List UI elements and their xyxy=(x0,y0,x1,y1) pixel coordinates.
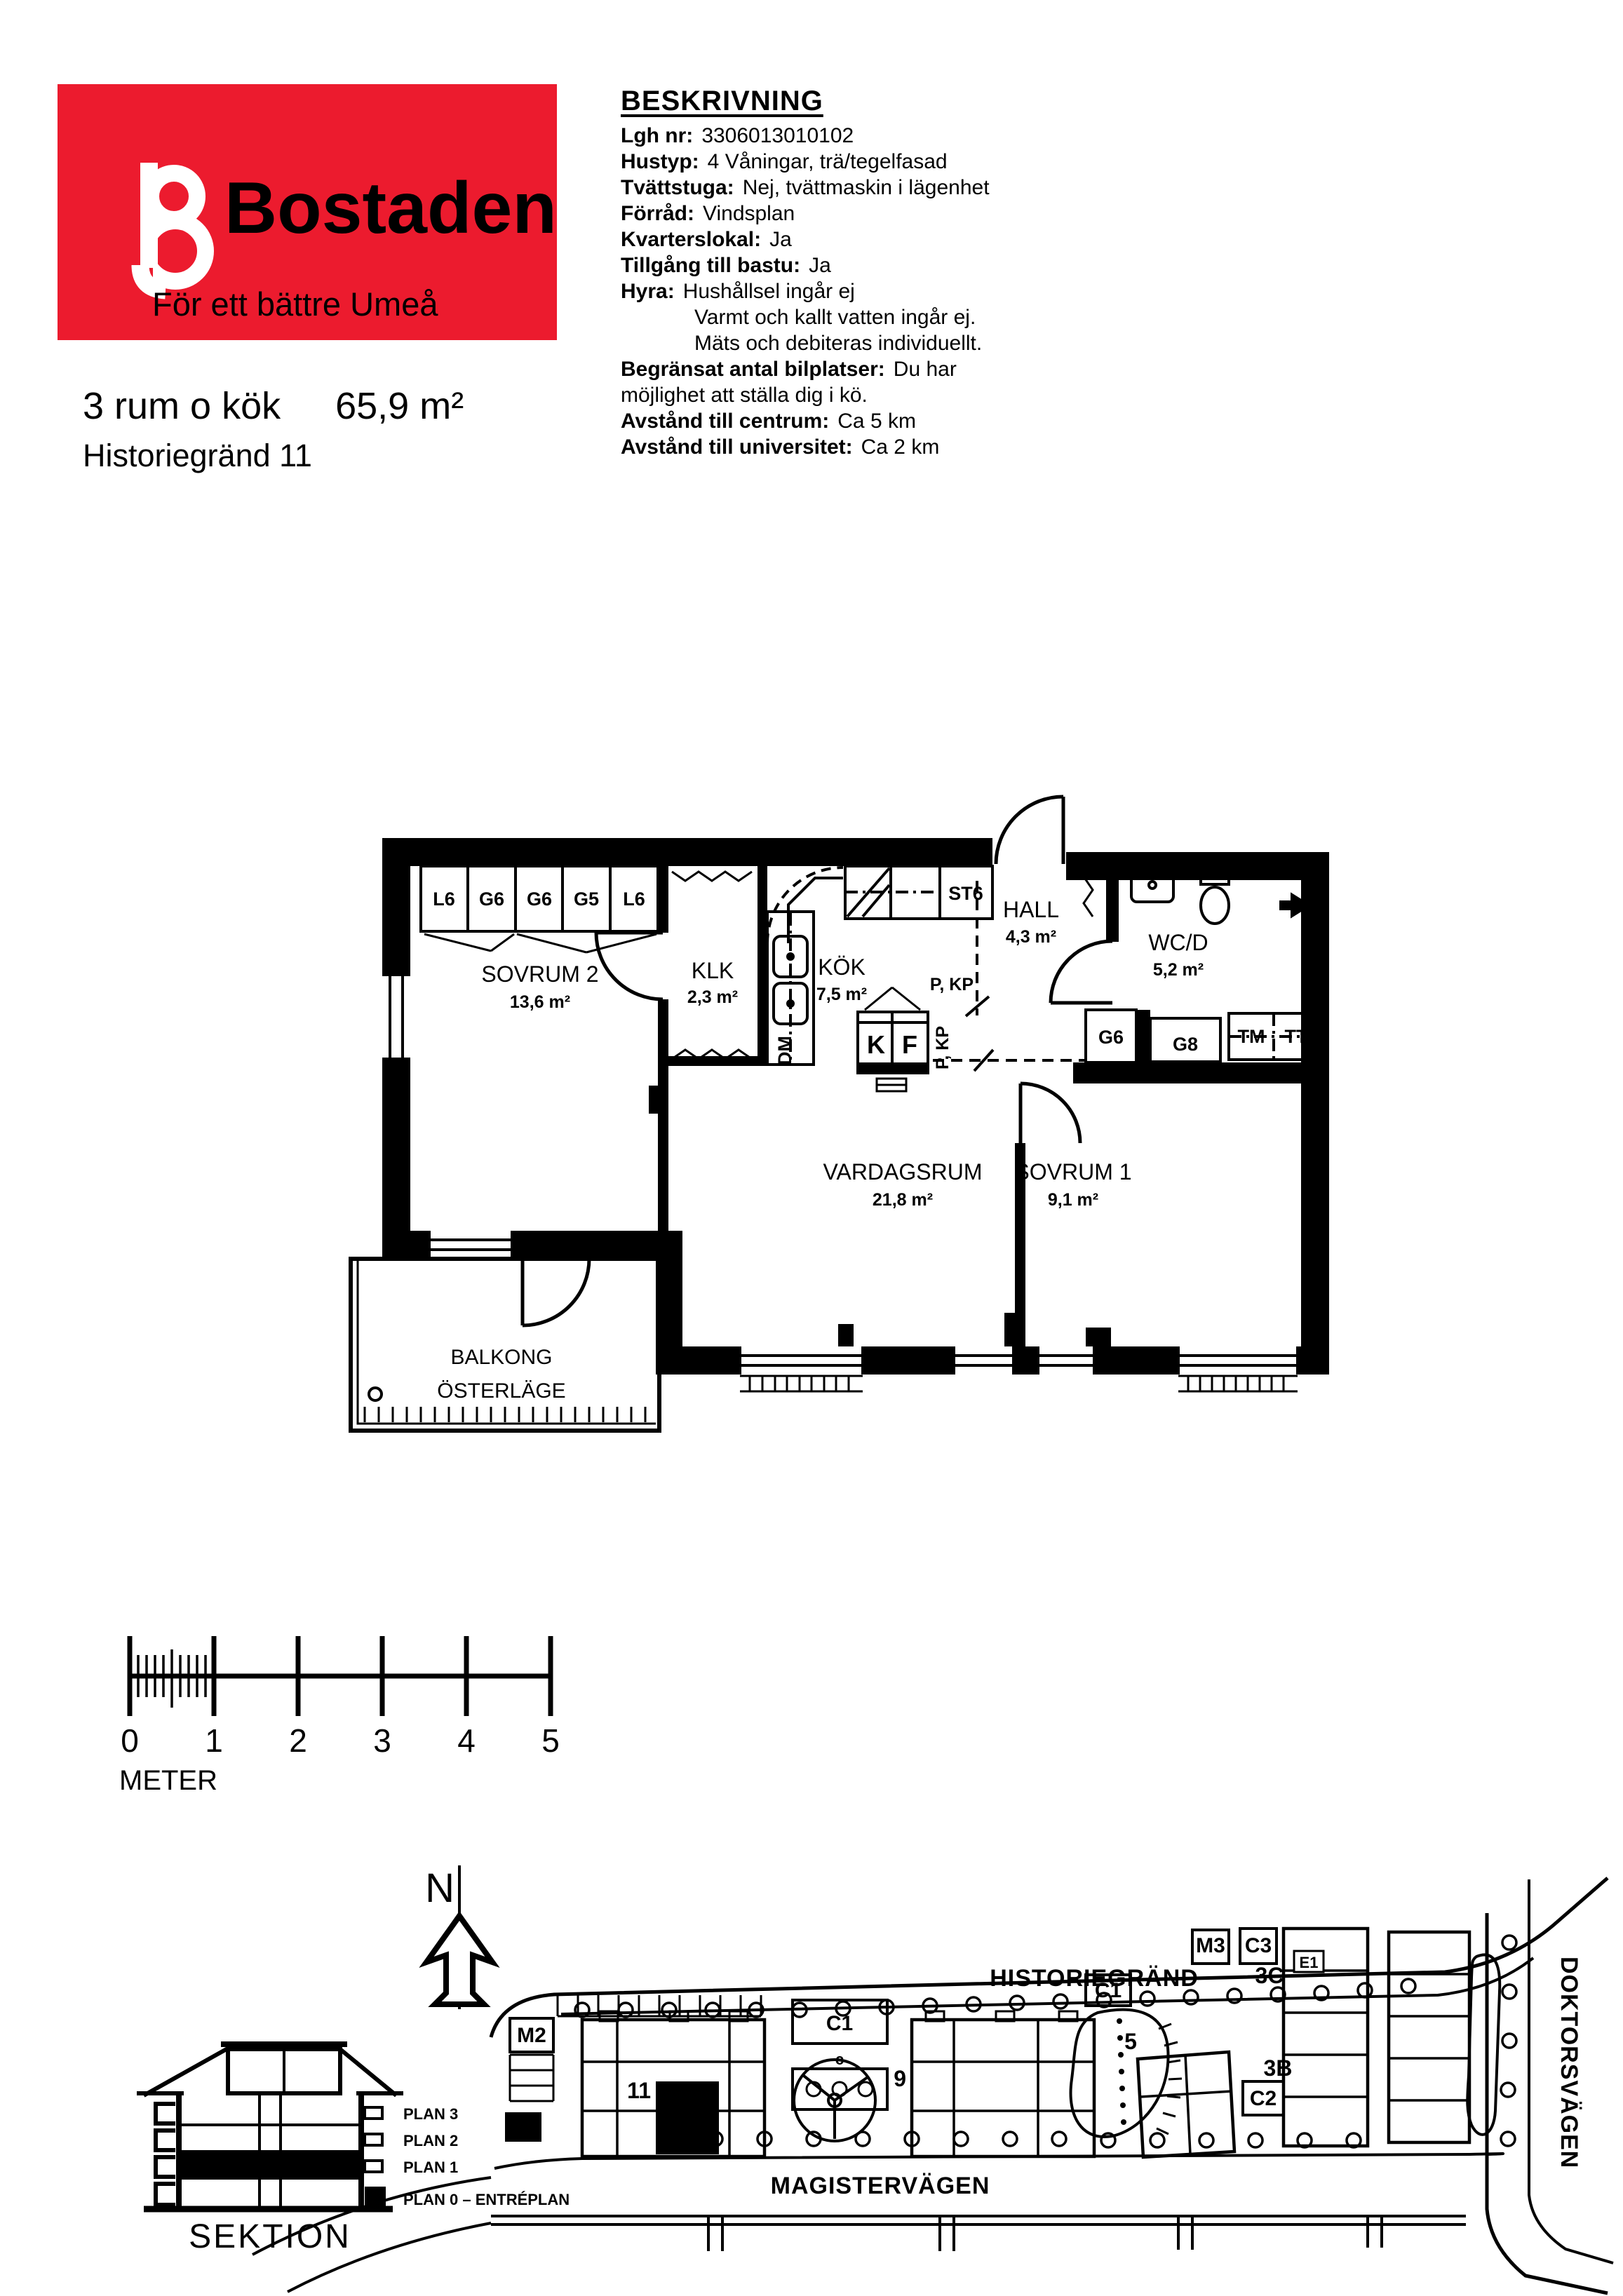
scale-tick: 5 xyxy=(541,1722,560,1759)
washer-label: TM xyxy=(1238,1026,1265,1047)
wardrobe-label: G6 xyxy=(479,889,504,910)
building-11 xyxy=(582,2011,765,2156)
cabinet-label: ST6 xyxy=(948,883,983,904)
road-east xyxy=(1487,1913,1608,2293)
room-label: SOVRUM 2 xyxy=(481,961,598,987)
floor-label: PLAN 3 xyxy=(403,2105,458,2123)
room-area: 7,5 m² xyxy=(816,985,867,1004)
wardrobe-label: L6 xyxy=(623,889,645,910)
site-label-9: 9 xyxy=(894,2066,906,2091)
entry-door xyxy=(996,797,1063,864)
compass-n: N xyxy=(425,1865,454,1911)
wardrobe-label: G6 xyxy=(527,889,552,910)
room-area: 5,2 m² xyxy=(1153,960,1204,980)
bedroom1-door xyxy=(1021,1083,1080,1143)
floorplan-labels: SOVRUM 2 13,6 m² KLK 2,3 m² KÖK 7,5 m² H… xyxy=(433,883,1308,1403)
scale-tick: 4 xyxy=(457,1722,476,1759)
floor-label: PLAN 1 xyxy=(403,2159,458,2176)
room-area: 13,6 m² xyxy=(510,992,570,1012)
section-balconies xyxy=(156,2104,175,2205)
freezer-label: F xyxy=(902,1030,917,1059)
north-arrow-icon xyxy=(426,1916,492,2004)
toilet-bowl xyxy=(1201,887,1229,924)
room-area: 2,3 m² xyxy=(687,987,738,1007)
entry-arrow-icon xyxy=(1281,902,1289,909)
site-label-c2: C2 xyxy=(1250,2087,1277,2110)
site-label-e1: E1 xyxy=(1300,1954,1319,1971)
scale-unit: METER xyxy=(119,1765,217,1796)
pipe-marker: P, KP xyxy=(933,1026,952,1069)
scale-bar: 0 1 2 3 4 5 METER xyxy=(119,1636,560,1796)
playground-icon xyxy=(794,2060,875,2141)
site-label-5: 5 xyxy=(1124,2029,1137,2054)
highlighted-floor xyxy=(179,2153,361,2180)
balcony-drain xyxy=(369,1388,382,1400)
building-5 xyxy=(1138,2052,1234,2157)
site-label-7: 7 xyxy=(517,2114,530,2140)
site-label-m3: M3 xyxy=(1196,1934,1225,1957)
room-label: KÖK xyxy=(818,954,866,980)
street-label: DOKTORSVÄGEN xyxy=(1556,1957,1582,2168)
fridge-label: K xyxy=(867,1030,885,1059)
balcony-label: ÖSTERLÄGE xyxy=(437,1379,565,1403)
site-label-c3: C3 xyxy=(1245,1934,1272,1957)
pipe-marker: P, KP xyxy=(930,975,974,994)
scale-tick: 2 xyxy=(289,1722,307,1759)
balcony-label: BALKONG xyxy=(450,1346,552,1369)
wardrobe-label: L6 xyxy=(433,889,455,910)
apartment-location-marker xyxy=(656,2081,719,2154)
vent-symbol xyxy=(1084,877,1093,917)
scale-tick: 0 xyxy=(121,1722,139,1759)
scale-numbers: 0 1 2 3 4 5 xyxy=(121,1722,560,1759)
site-label-3c: 3C xyxy=(1255,1963,1284,1988)
room-area: 9,1 m² xyxy=(1048,1190,1098,1210)
site-label-m2: M2 xyxy=(517,2024,546,2047)
scale-tick: 1 xyxy=(205,1722,223,1759)
site-label-3b: 3B xyxy=(1264,2055,1293,2081)
dryer-label: TT xyxy=(1285,1026,1308,1047)
room-label: WC/D xyxy=(1148,930,1208,955)
scale-tick: 3 xyxy=(373,1722,391,1759)
balcony-door xyxy=(523,1259,589,1325)
floor-label: PLAN 0 – ENTRÉPLAN xyxy=(403,2191,570,2208)
room-area: 21,8 m² xyxy=(873,1190,933,1210)
room-label: SOVRUM 1 xyxy=(1014,1159,1131,1184)
cabinet-label: G8 xyxy=(1173,1034,1198,1055)
room-label: VARDAGSRUM xyxy=(823,1159,983,1184)
compass: N xyxy=(425,1865,492,2009)
bedroom2-door xyxy=(596,933,663,999)
dishwasher-label: DM xyxy=(774,1036,795,1065)
balcony xyxy=(351,1259,659,1431)
site-label-c1: C1 xyxy=(1095,1979,1122,2002)
floor-plan: SOVRUM 2 13,6 m² KLK 2,3 m² KÖK 7,5 m² H… xyxy=(351,797,1329,1431)
room-area: 4,3 m² xyxy=(1006,927,1056,947)
drawing-canvas: SOVRUM 2 13,6 m² KLK 2,3 m² KÖK 7,5 m² H… xyxy=(0,0,1623,2296)
cabinet-label: G6 xyxy=(1098,1027,1124,1048)
railing-hatch xyxy=(740,1376,863,1391)
folding-door xyxy=(672,872,752,881)
wc-door xyxy=(1051,941,1112,1003)
room-label: HALL xyxy=(1003,897,1059,922)
railing-hatch xyxy=(1178,1376,1298,1391)
street-label: MAGISTERVÄGEN xyxy=(771,2173,990,2199)
floor-label: PLAN 2 xyxy=(403,2132,458,2149)
driveways xyxy=(708,2216,1382,2251)
site-label-c: c xyxy=(835,2051,844,2068)
site-label-c1: C1 xyxy=(826,2012,853,2035)
section-title: SEKTION xyxy=(189,2218,351,2255)
site-label-11: 11 xyxy=(627,2078,651,2103)
room-label: KLK xyxy=(692,958,734,983)
wardrobe-label: G5 xyxy=(574,889,599,910)
